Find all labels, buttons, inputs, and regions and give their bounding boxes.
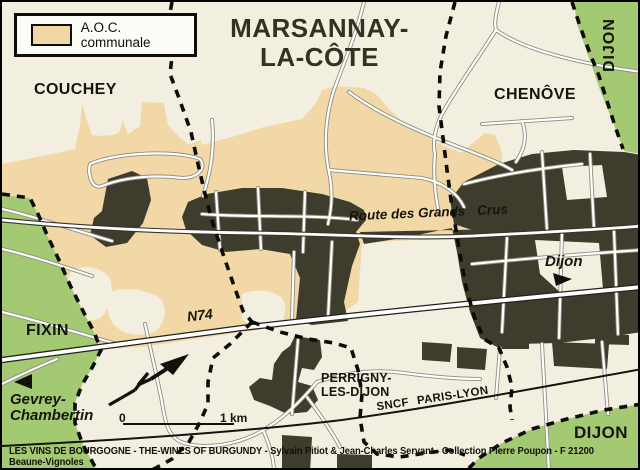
label-n74: N74	[186, 305, 213, 324]
label-dijon-bottom: DIJON	[574, 423, 628, 443]
label-chenove: CHENÔVE	[494, 86, 576, 104]
label-dijon-direction: Dijon	[545, 253, 583, 270]
scale-zero: 0	[119, 411, 126, 425]
legend-box: A.O.C. communale	[14, 13, 197, 57]
aoc-swatch	[31, 24, 72, 46]
perrigny-line-1: PERRIGNY-	[321, 372, 392, 386]
scale-1km: 1 km	[220, 411, 247, 425]
map-caption: LES VINS DE BOURGOGNE - THE-WINES OF BUR…	[9, 446, 600, 468]
title-line-1: MARSANNAY-	[212, 14, 427, 43]
label-fixin: FIXIN	[26, 322, 69, 340]
label-perrigny-les-dijon: PERRIGNY- LES-DIJON	[321, 372, 392, 399]
legend-label: A.O.C. communale	[81, 20, 194, 50]
label-dijon-top: DIJON	[601, 18, 619, 72]
perrigny-line-2: LES-DIJON	[321, 386, 392, 400]
gevrey-line-2: Chambertin	[10, 408, 93, 424]
map-page: A.O.C. communale MARSANNAY- LA-CÔTE COUC…	[0, 0, 640, 470]
grands-crus-label-b: Crus	[477, 202, 508, 218]
page-title: MARSANNAY- LA-CÔTE	[212, 14, 427, 72]
gevrey-line-1: Gevrey-	[10, 392, 93, 408]
title-line-2: LA-CÔTE	[212, 43, 427, 72]
label-couchey: COUCHEY	[34, 81, 117, 99]
label-gevrey-chambertin: Gevrey- Chambertin	[10, 392, 93, 424]
